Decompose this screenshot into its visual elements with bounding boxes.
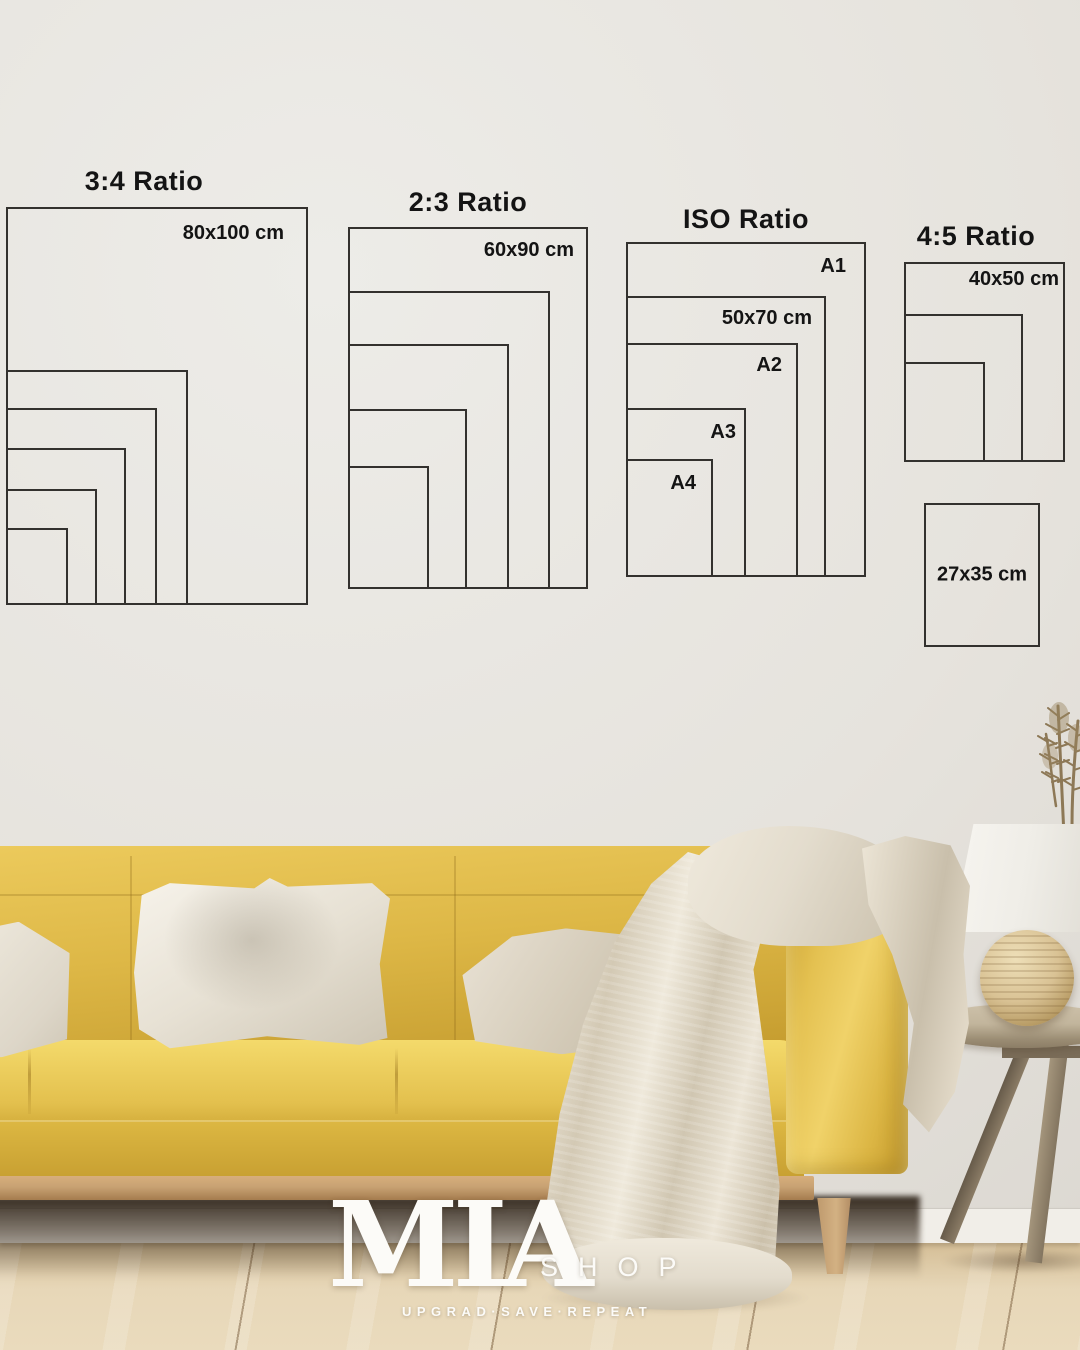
sofa-back-seam [454, 856, 456, 1051]
seat-cushion-gap [395, 1048, 398, 1114]
ratio-iso-size-label-1: A1 [820, 255, 846, 278]
brand-logo-mia: MIA [328, 1186, 587, 1304]
brand-tagline: UPGRAD·SAVE·REPEAT [402, 1304, 652, 1319]
ratio-2-3-title: 2:3 Ratio [409, 187, 528, 218]
ratio-3-4-title: 3:4 Ratio [85, 166, 204, 197]
pillow-center [134, 878, 390, 1050]
dried-plant [1012, 686, 1080, 841]
lamp-shade [952, 824, 1080, 932]
lamp-base [980, 930, 1074, 1026]
ratio-iso-frame-5: A4 [626, 459, 713, 577]
brand-logo-shop: SHOP [540, 1252, 697, 1283]
ratio-iso-size-label-4: A3 [710, 421, 736, 444]
table-shadow [940, 1248, 1080, 1274]
ratio-4-5-frame-4: 27x35 cm [924, 503, 1040, 647]
poster-size-guide-mockup: 3:4 Ratio80x100 cm2:3 Ratio60x90 cmISO R… [0, 0, 1080, 1350]
ratio-iso-title: ISO Ratio [683, 204, 809, 235]
ratio-iso-size-label-5: A4 [670, 472, 696, 495]
ratio-2-3-frame-5 [348, 466, 429, 589]
seat-cushion-gap [28, 1048, 31, 1114]
ratio-4-5-title: 4:5 Ratio [917, 221, 1036, 252]
sofa-back-seam [130, 856, 132, 1051]
ratio-4-5-frame-3 [904, 362, 985, 462]
ratio-3-4-frame-6 [6, 528, 68, 605]
ratio-4-5-size-label-4: 27x35 cm [937, 564, 1027, 587]
ratio-iso-size-label-2: 50x70 cm [722, 307, 812, 330]
dried-plant-branches [1012, 686, 1080, 841]
ratio-iso-size-label-3: A2 [756, 354, 782, 377]
ratio-3-4-size-label-1: 80x100 cm [183, 222, 284, 245]
ratio-4-5-size-label-1: 40x50 cm [969, 268, 1059, 291]
ratio-2-3-size-label-1: 60x90 cm [484, 239, 574, 262]
